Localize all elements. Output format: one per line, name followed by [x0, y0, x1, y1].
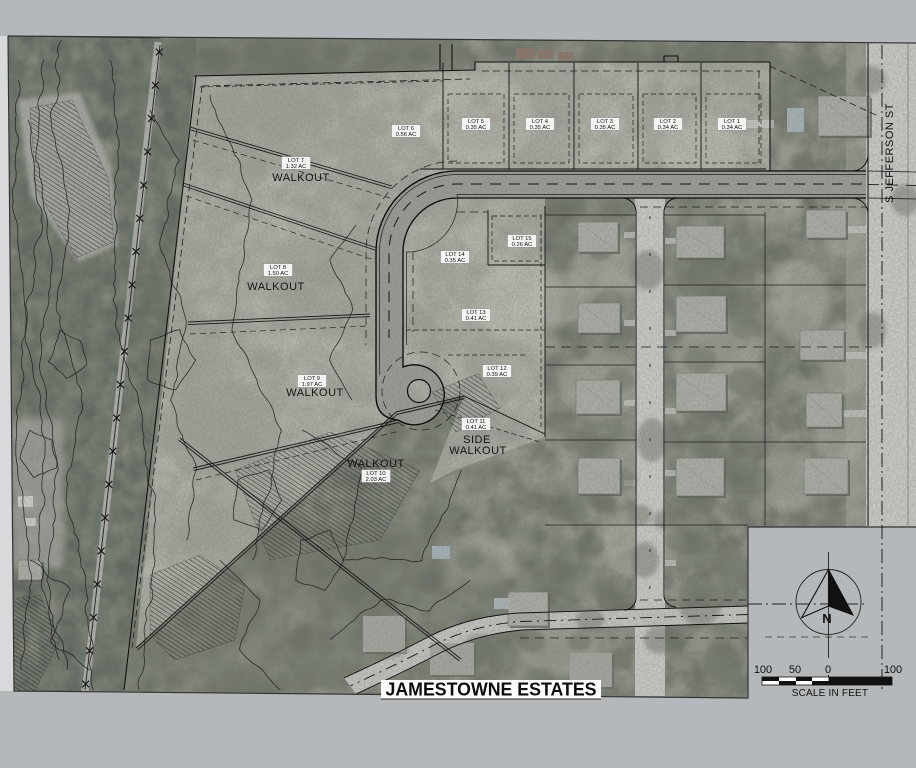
svg-text:50: 50: [789, 664, 801, 676]
svg-text:WALKOUT: WALKOUT: [286, 387, 344, 399]
svg-text:0.35 AC: 0.35 AC: [445, 258, 466, 264]
svg-text:0.35 AC: 0.35 AC: [595, 125, 616, 131]
svg-text:SCALE IN FEET: SCALE IN FEET: [792, 688, 869, 699]
svg-text:S JEFFERSON ST: S JEFFERSON ST: [884, 103, 896, 203]
svg-text:0.56 AC: 0.56 AC: [396, 132, 417, 138]
svg-text:0: 0: [825, 664, 831, 676]
svg-text:0.41 AC: 0.41 AC: [466, 316, 487, 322]
svg-text:2.03 AC: 2.03 AC: [366, 477, 387, 483]
svg-text:0.41 AC: 0.41 AC: [466, 425, 487, 431]
svg-text:0.34 AC: 0.34 AC: [658, 125, 679, 131]
svg-text:0.35 AC: 0.35 AC: [466, 125, 487, 131]
svg-text:1.50 AC: 1.50 AC: [268, 271, 289, 277]
svg-text:WALKOUT: WALKOUT: [272, 172, 330, 184]
svg-text:1.32 AC: 1.32 AC: [286, 164, 307, 170]
svg-text:0.34 AC: 0.34 AC: [722, 125, 743, 131]
svg-text:0.35 AC: 0.35 AC: [530, 125, 551, 131]
svg-text:JAMESTOWNE ESTATES: JAMESTOWNE ESTATES: [386, 679, 597, 700]
svg-text:WALKOUT: WALKOUT: [347, 458, 405, 470]
svg-text:100: 100: [754, 664, 772, 676]
svg-text:100: 100: [884, 664, 902, 676]
svg-text:0.26 AC: 0.26 AC: [512, 242, 533, 248]
svg-text:WALKOUT: WALKOUT: [449, 445, 507, 457]
svg-text:N: N: [822, 611, 831, 626]
svg-text:0.39 AC: 0.39 AC: [487, 372, 508, 378]
svg-text:WALKOUT: WALKOUT: [247, 281, 305, 293]
